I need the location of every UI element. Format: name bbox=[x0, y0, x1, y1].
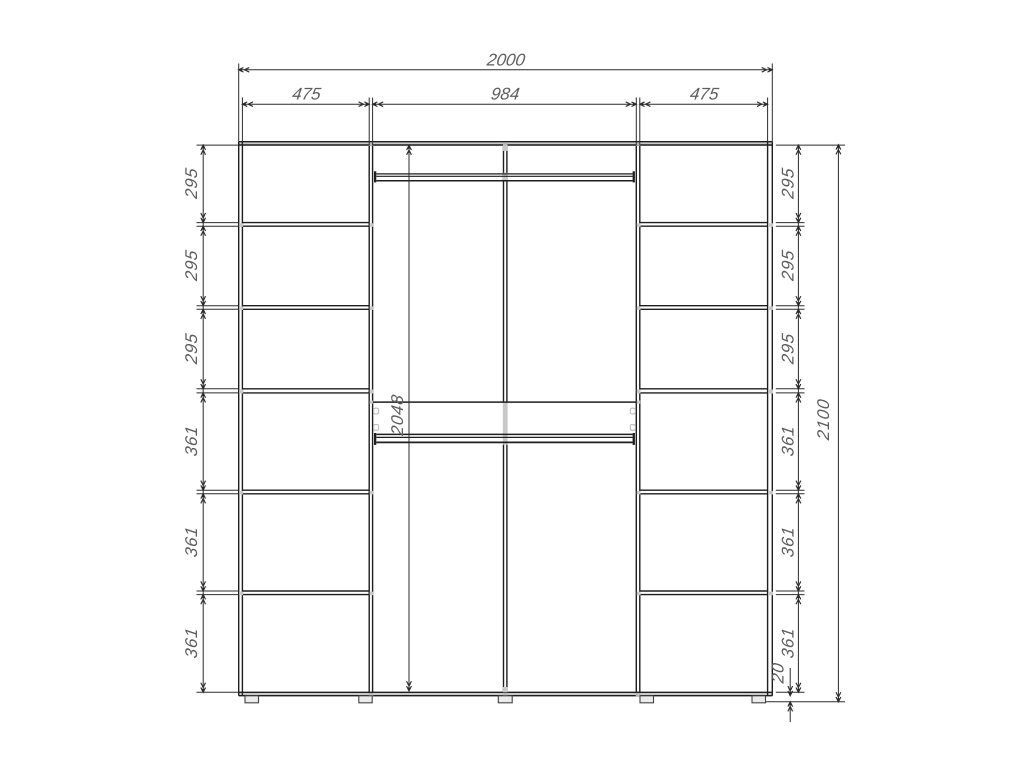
svg-text:295: 295 bbox=[778, 166, 797, 200]
svg-text:20: 20 bbox=[769, 661, 788, 685]
svg-text:361: 361 bbox=[182, 626, 201, 659]
svg-text:295: 295 bbox=[778, 248, 797, 282]
svg-text:295: 295 bbox=[182, 332, 201, 366]
svg-text:361: 361 bbox=[778, 424, 797, 457]
svg-text:2048: 2048 bbox=[388, 393, 407, 438]
svg-text:2000: 2000 bbox=[485, 50, 527, 69]
svg-text:295: 295 bbox=[182, 248, 201, 282]
svg-text:295: 295 bbox=[182, 166, 201, 200]
svg-text:295: 295 bbox=[778, 332, 797, 366]
svg-text:361: 361 bbox=[182, 424, 201, 457]
svg-text:361: 361 bbox=[778, 525, 797, 558]
svg-text:984: 984 bbox=[490, 85, 521, 104]
svg-text:475: 475 bbox=[291, 85, 323, 104]
svg-text:361: 361 bbox=[778, 626, 797, 659]
svg-text:361: 361 bbox=[182, 525, 201, 558]
svg-text:2100: 2100 bbox=[814, 397, 833, 442]
svg-text:475: 475 bbox=[689, 85, 721, 104]
